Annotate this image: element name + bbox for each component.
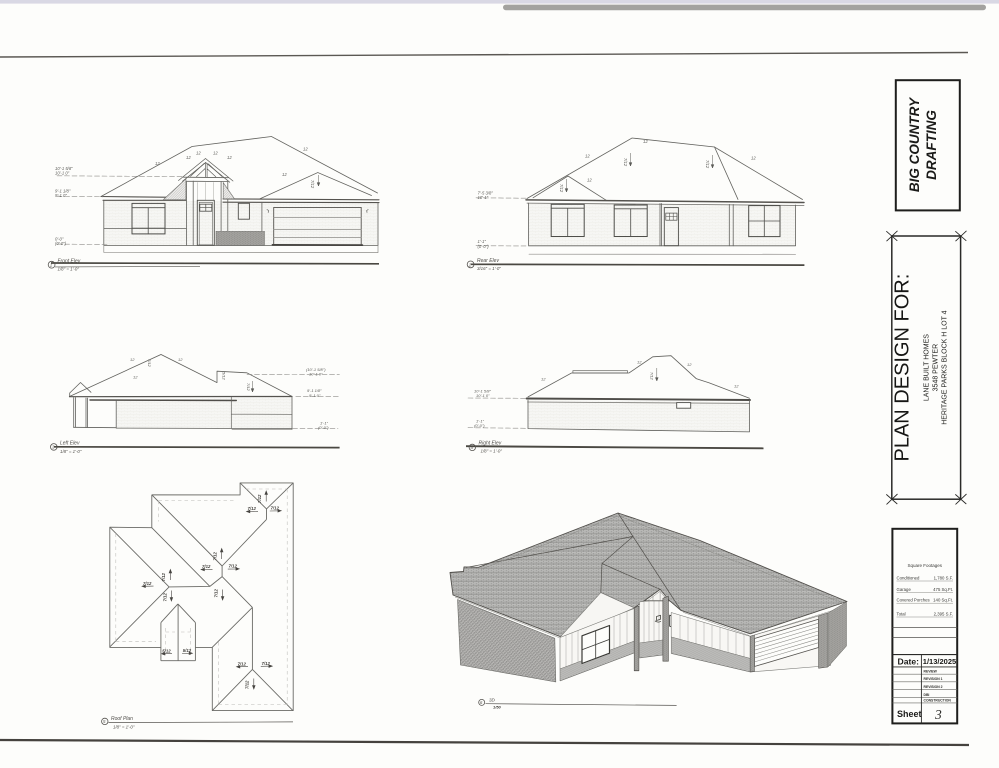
svg-text:7/12: 7/12 (310, 180, 315, 189)
svg-text:3D: 3D (489, 698, 496, 703)
svg-text:9'-1 0": 9'-1 0" (309, 393, 321, 398)
svg-text:12: 12 (186, 155, 191, 160)
svg-text:7/12: 7/12 (143, 581, 152, 586)
svg-text:5/12: 5/12 (162, 648, 171, 653)
svg-text:(0'-0"): (0'-0") (55, 241, 67, 246)
svg-text:7/12: 7/12 (147, 359, 152, 368)
svg-text:12: 12 (130, 357, 135, 362)
svg-text:7/12: 7/12 (705, 160, 710, 169)
svg-text:12: 12 (585, 154, 590, 159)
svg-text:10'-1 0": 10'-1 0" (309, 371, 323, 376)
svg-text:3548 PEWTER: 3548 PEWTER (933, 344, 940, 391)
svg-text:12: 12 (751, 156, 756, 161)
svg-text:12: 12 (541, 376, 546, 381)
svg-text:7/12: 7/12 (248, 506, 257, 511)
svg-text:Rear Elev: Rear Elev (477, 258, 499, 264)
svg-text:7/12: 7/12 (162, 593, 167, 602)
svg-text:PLAN DESIGN FOR:: PLAN DESIGN FOR: (892, 274, 914, 462)
svg-text:12: 12 (587, 178, 592, 183)
svg-text:7/12: 7/12 (559, 184, 564, 193)
svg-text:7/12: 7/12 (213, 552, 218, 561)
svg-text:1/8" = 1'-0": 1/8" = 1'-0" (113, 724, 135, 729)
svg-text:12: 12 (303, 147, 308, 152)
svg-text:1/13/2025: 1/13/2025 (923, 657, 956, 666)
svg-text:3/16" = 1'-0": 3/16" = 1'-0" (477, 266, 501, 271)
svg-text:7/12: 7/12 (202, 564, 211, 569)
svg-text:12: 12 (282, 172, 287, 177)
svg-text:(0'-0"): (0'-0") (474, 423, 485, 428)
svg-text:Garage: Garage (897, 587, 912, 592)
svg-text:12: 12 (643, 139, 648, 144)
svg-text:Front Elev: Front Elev (58, 258, 81, 264)
svg-text:1/50: 1/50 (493, 705, 502, 710)
svg-text:12: 12 (687, 362, 692, 367)
svg-text:10'-1 0": 10'-1 0" (55, 171, 70, 176)
svg-text:7/12: 7/12 (650, 372, 655, 381)
svg-text:7/12: 7/12 (245, 680, 250, 689)
svg-text:REVIEW: REVIEW (924, 670, 938, 674)
svg-text:12: 12 (213, 151, 218, 156)
svg-text:10'-1 0": 10'-1 0" (476, 393, 490, 398)
svg-text:Covered Porches: Covered Porches (897, 598, 930, 603)
svg-text:REVISION 2: REVISION 2 (924, 685, 943, 689)
svg-text:7/12: 7/12 (161, 573, 166, 582)
svg-text:DBI: DBI (924, 693, 930, 697)
svg-text:7/12: 7/12 (214, 589, 219, 598)
svg-text:9'-1 0": 9'-1 0" (55, 193, 67, 198)
svg-text:HERITAGE PARKS BLOCK H LOT 4: HERITAGE PARKS BLOCK H LOT 4 (942, 310, 949, 424)
svg-text:12: 12 (196, 151, 201, 156)
svg-text:1/8" = 1'-0": 1/8" = 1'-0" (58, 267, 80, 272)
svg-text:(0'-0"): (0'-0") (318, 425, 329, 430)
svg-text:2: 2 (468, 262, 472, 267)
svg-text:Left Elev: Left Elev (60, 441, 80, 447)
svg-text:Square Footages: Square Footages (908, 563, 943, 568)
svg-text:12: 12 (133, 374, 138, 379)
svg-text:475 Sq.Ft.: 475 Sq.Ft. (933, 587, 953, 592)
svg-text:LANE BUILT HOMES: LANE BUILT HOMES (924, 334, 931, 401)
svg-text:5/12: 5/12 (222, 372, 227, 381)
svg-text:Conditioned: Conditioned (897, 576, 921, 581)
svg-text:BIG COUNTRY: BIG COUNTRY (907, 96, 922, 192)
svg-text:Right Elev: Right Elev (479, 440, 502, 446)
svg-text:CONSTRUCTION: CONSTRUCTION (924, 698, 952, 702)
svg-text:REVISION 1: REVISION 1 (924, 677, 943, 681)
svg-text:140 Sq.Ft.: 140 Sq.Ft. (933, 598, 953, 603)
svg-text:1/8" = 1'-0": 1/8" = 1'-0" (60, 449, 82, 454)
svg-text:7/12: 7/12 (623, 158, 628, 167)
svg-text:7/12: 7/12 (257, 494, 262, 503)
svg-text:12: 12 (178, 357, 183, 362)
svg-text:10'-1": 10'-1" (478, 195, 489, 200)
svg-text:3: 3 (934, 707, 942, 722)
svg-text:Date:: Date: (898, 656, 920, 666)
svg-text:2,395 S.F.: 2,395 S.F. (934, 612, 953, 617)
svg-text:12: 12 (155, 161, 160, 166)
svg-text:DRAFTING: DRAFTING (924, 110, 939, 180)
svg-text:Roof Plan: Roof Plan (111, 716, 133, 722)
svg-text:Total: Total (897, 612, 906, 617)
svg-text:7/12: 7/12 (246, 383, 251, 392)
svg-text:12: 12 (227, 155, 232, 160)
svg-text:12: 12 (637, 359, 642, 364)
svg-text:Sheet: Sheet (897, 709, 922, 719)
svg-text:(0'-0"): (0'-0") (478, 244, 490, 249)
svg-text:1/8" = 1'-0": 1/8" = 1'-0" (481, 449, 503, 454)
svg-text:12: 12 (734, 383, 739, 388)
svg-text:1,780 S.F.: 1,780 S.F. (934, 576, 953, 581)
svg-text:7/12: 7/12 (238, 661, 247, 666)
